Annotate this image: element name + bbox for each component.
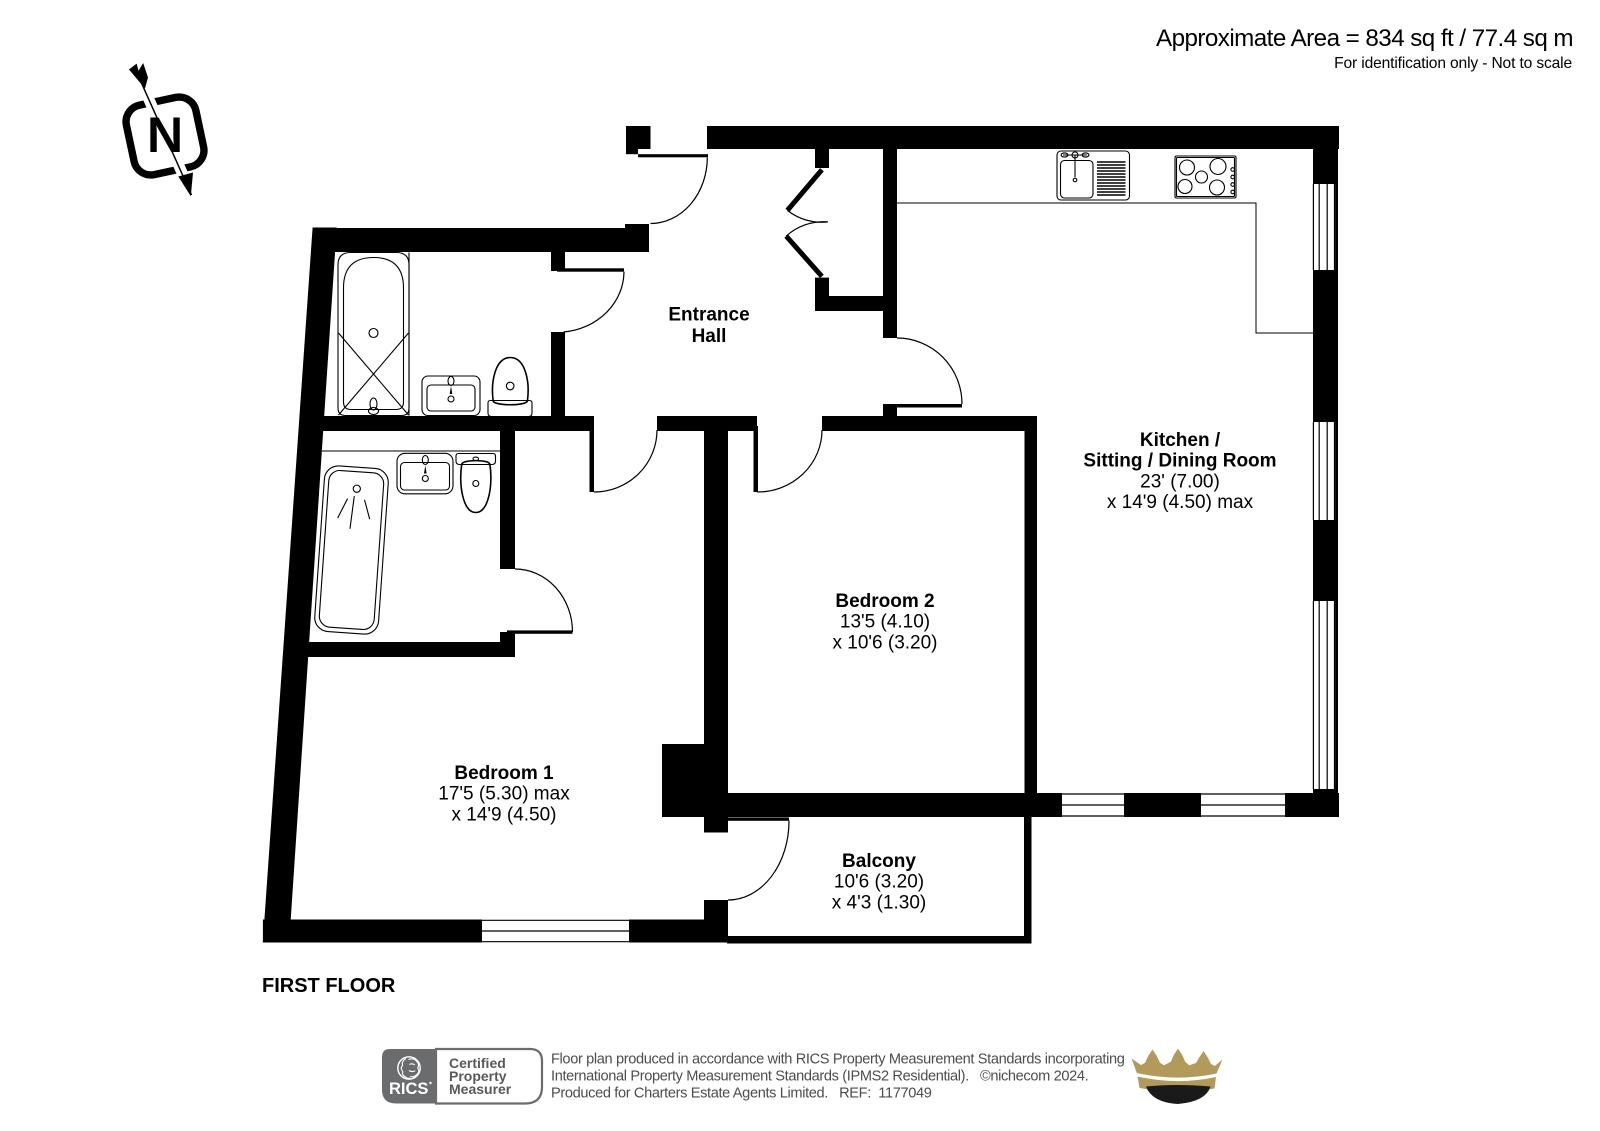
svg-text:FIRST FLOOR: FIRST FLOOR <box>262 975 396 997</box>
svg-text:RICS: RICS <box>389 1080 428 1098</box>
svg-text:x 10'6 (3.20): x 10'6 (3.20) <box>832 632 937 653</box>
svg-text:Bedroom 1: Bedroom 1 <box>454 763 554 784</box>
svg-text:Balcony: Balcony <box>842 851 916 872</box>
svg-text:Measurer: Measurer <box>449 1081 512 1097</box>
svg-text:23' (7.00): 23' (7.00) <box>1140 471 1220 492</box>
svg-text:For identification only - Not: For identification only - Not to scale <box>1334 55 1572 72</box>
svg-text:x 4'3 (1.30): x 4'3 (1.30) <box>832 892 926 913</box>
svg-text:x 14'9 (4.50): x 14'9 (4.50) <box>451 804 556 825</box>
svg-text:17'5 (5.30) max: 17'5 (5.30) max <box>438 784 570 805</box>
svg-text:13'5 (4.10): 13'5 (4.10) <box>840 612 930 633</box>
svg-text:Bedroom 2: Bedroom 2 <box>835 591 934 612</box>
svg-text:Produced for Charters Estate A: Produced for Charters Estate Agents Limi… <box>551 1086 932 1102</box>
svg-text:10'6 (3.20): 10'6 (3.20) <box>834 872 924 893</box>
svg-text:x 14'9 (4.50) max: x 14'9 (4.50) max <box>1107 492 1254 513</box>
svg-text:Sitting / Dining Room: Sitting / Dining Room <box>1083 451 1276 472</box>
svg-text:Floor plan produced in accorda: Floor plan produced in accordance with R… <box>551 1052 1125 1068</box>
svg-text:Hall: Hall <box>692 326 727 347</box>
svg-text:Approximate Area = 834 sq ft /: Approximate Area = 834 sq ft / 77.4 sq m <box>1156 25 1573 52</box>
svg-text:Kitchen /: Kitchen / <box>1140 430 1221 451</box>
svg-text:Entrance: Entrance <box>668 305 749 326</box>
svg-text:International Property Measure: International Property Measurement Stand… <box>551 1069 1088 1085</box>
svg-text:N: N <box>147 107 183 163</box>
